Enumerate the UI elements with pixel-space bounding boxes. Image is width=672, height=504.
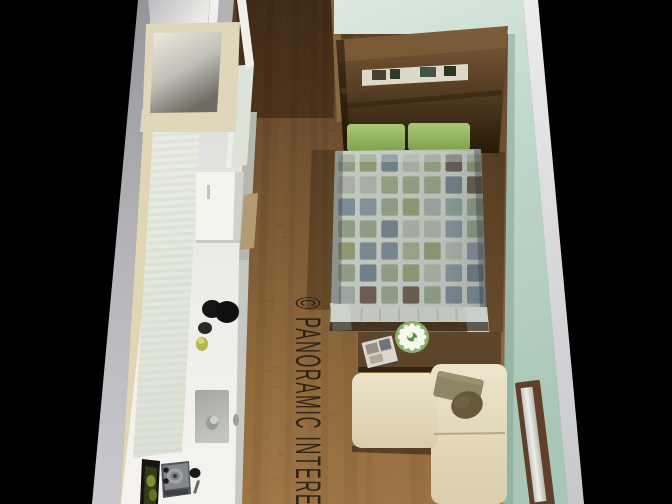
svg-text:© PANORAMIC INTERE: © PANORAMIC INTERE xyxy=(288,297,328,504)
